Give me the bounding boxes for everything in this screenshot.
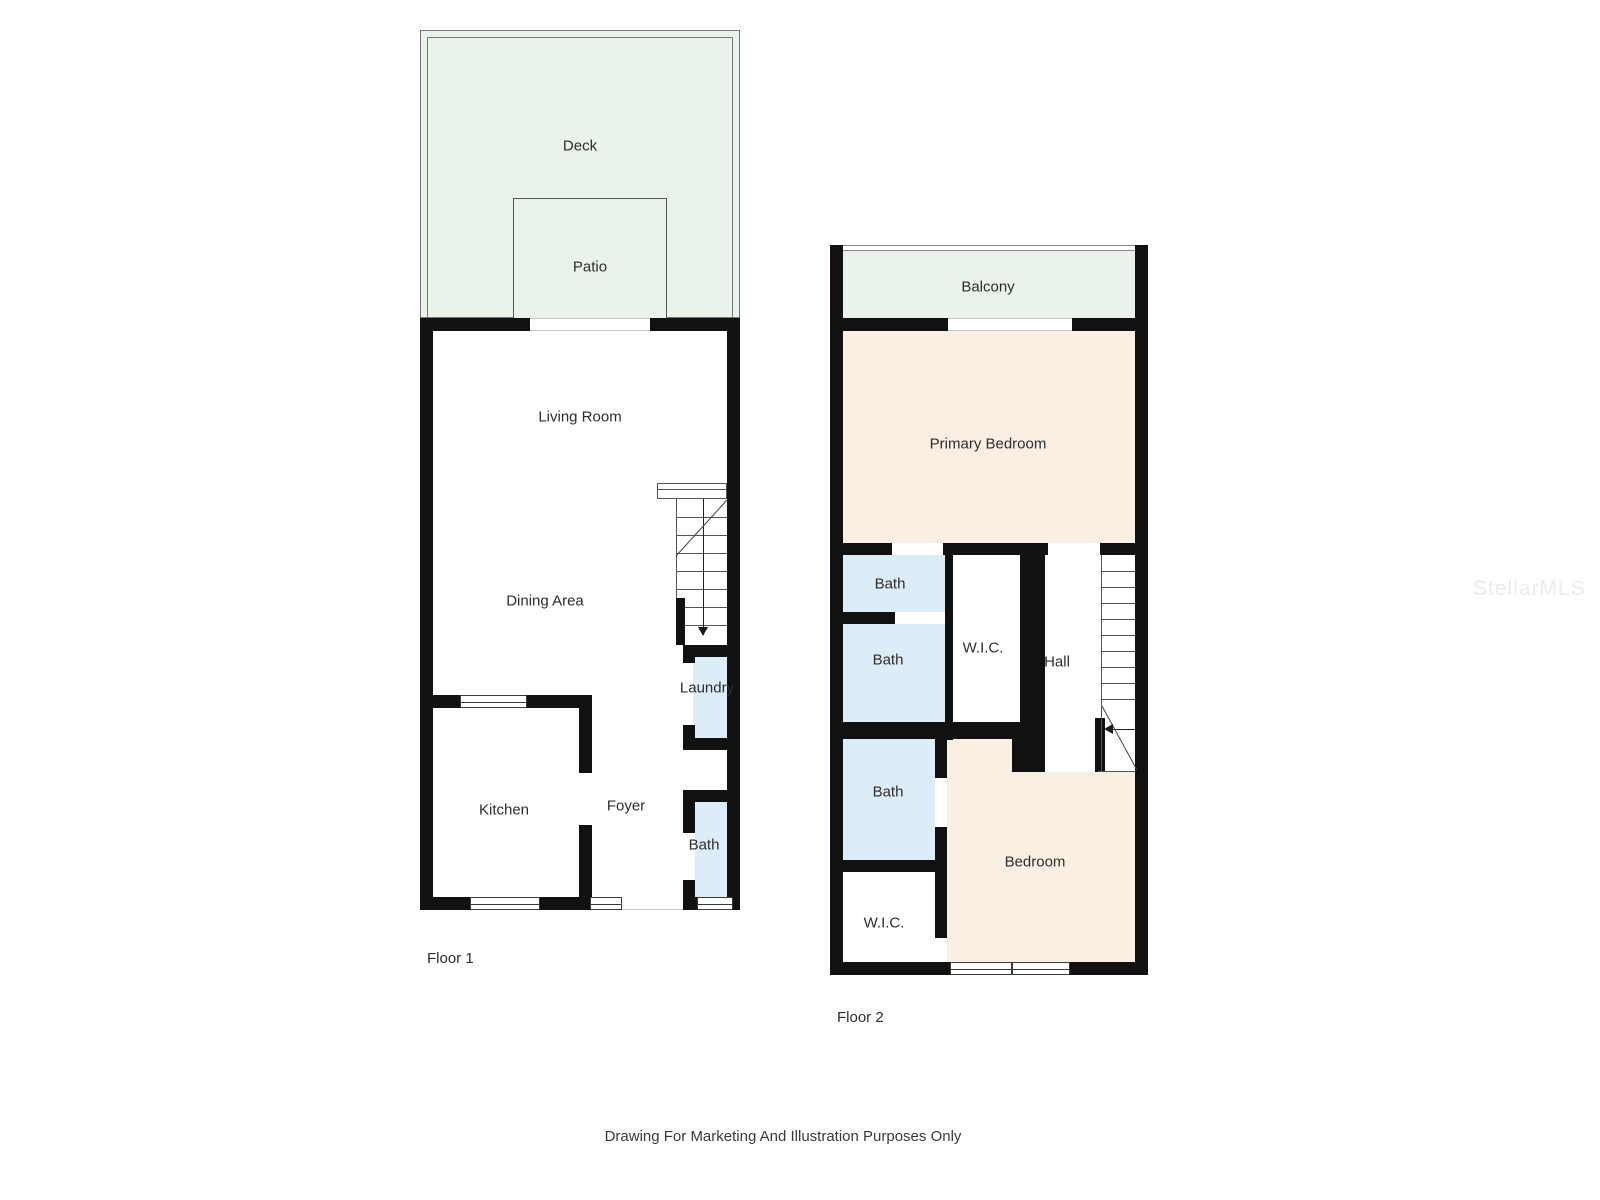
wall-segment [843,318,948,331]
wall-segment [935,872,947,938]
room-label-bath-small: Bath [875,576,906,593]
wall-segment [935,739,947,778]
wall-segment [683,897,697,910]
wall-segment [420,897,470,910]
stair-tread [1102,603,1135,604]
stair-tread [677,571,727,572]
wall-segment [727,318,740,910]
stair-line [1098,771,1135,772]
wall-segment [733,897,740,910]
wall-segment [540,897,590,910]
wall-segment [830,245,843,975]
room-wic-1 [953,555,1020,722]
stair-landing [657,483,727,499]
stair-tread [1102,699,1135,700]
window-symbol [1012,962,1070,975]
wall-segment [579,695,592,773]
stair-tread [1102,587,1135,588]
stair-tread [1102,683,1135,684]
wall-segment [683,880,695,897]
wall-segment [676,598,685,645]
room-label-bedroom: Bedroom [1005,854,1066,871]
wall-segment [683,725,695,738]
room-bath-medium [843,624,945,722]
wall-segment [683,790,740,802]
stair-tread [1102,651,1135,652]
room-label-wic-1: W.I.C. [963,640,1004,657]
stair-tread [1102,667,1135,668]
entry-door-opening [622,897,683,910]
stair-arrow-shaft [1112,729,1137,730]
wall-segment [650,318,740,331]
wall-segment [843,860,947,872]
wall-segment [1135,245,1148,975]
room-bedroom [947,739,1135,962]
wall-segment [420,695,460,708]
window-symbol [950,962,1012,975]
disclaimer-text: Drawing For Marketing And Illustration P… [605,1128,962,1145]
wall-segment [843,612,895,624]
wall-segment [1100,543,1135,555]
wall-segment [683,738,740,750]
wall-segment [843,722,1012,739]
stair-tread [1102,571,1135,572]
stair-tread [677,553,727,554]
stair-arrow-shaft [703,499,704,627]
wall-segment [683,645,695,663]
stair-tread [677,535,727,536]
stair-tread [677,517,727,518]
floor2-label: Floor 2 [837,1009,884,1026]
room-label-balcony: Balcony [961,279,1014,296]
room-label-primary-bedroom: Primary Bedroom [930,436,1047,453]
room-label-bath-3: Bath [873,784,904,801]
room-label-laundry: Laundry [680,680,734,697]
room-label-deck: Deck [563,138,597,155]
room-laundry [693,657,727,738]
window-symbol [590,897,622,910]
room-label-dining-area: Dining Area [506,593,584,610]
wall-segment [579,825,592,897]
wall-segment [420,318,530,331]
wall-segment [945,543,953,740]
room-label-wic-2: W.I.C. [864,915,905,932]
floorplan-canvas: Deck Patio [0,0,1600,1200]
window-symbol [697,897,733,910]
wall-segment [683,802,695,833]
stair-tread [1102,619,1135,620]
stellar-mls-watermark: StellarMLS [1473,577,1586,601]
room-label-foyer: Foyer [607,798,645,815]
stair-diagonal-lines [0,0,1600,1200]
wall-segment [1070,962,1148,975]
floor1-label: Floor 1 [427,950,474,967]
wall-segment [1072,318,1135,331]
stair-line [676,499,677,598]
wall-segment [843,543,892,555]
stair-tread [677,589,727,590]
stair-left-arrow-icon [1104,724,1113,734]
patio-door-opening [530,318,650,331]
stair-tread [1102,635,1135,636]
balcony-door-opening [948,318,1072,331]
room-label-patio: Patio [573,259,607,276]
window-symbol [460,695,527,708]
room-label-living-room: Living Room [538,409,621,426]
room-label-kitchen: Kitchen [479,802,529,819]
window-symbol [470,897,540,910]
room-label-hall: Hall [1044,654,1070,671]
room-label-bath-f1: Bath [689,837,720,854]
wall-segment [830,962,950,975]
wall-segment [420,318,433,910]
stair-down-arrow-icon [698,627,708,636]
stair-line [658,489,726,490]
room-label-bath-medium: Bath [873,652,904,669]
balcony-rail-line [843,245,1135,246]
wall-segment [1012,722,1045,772]
